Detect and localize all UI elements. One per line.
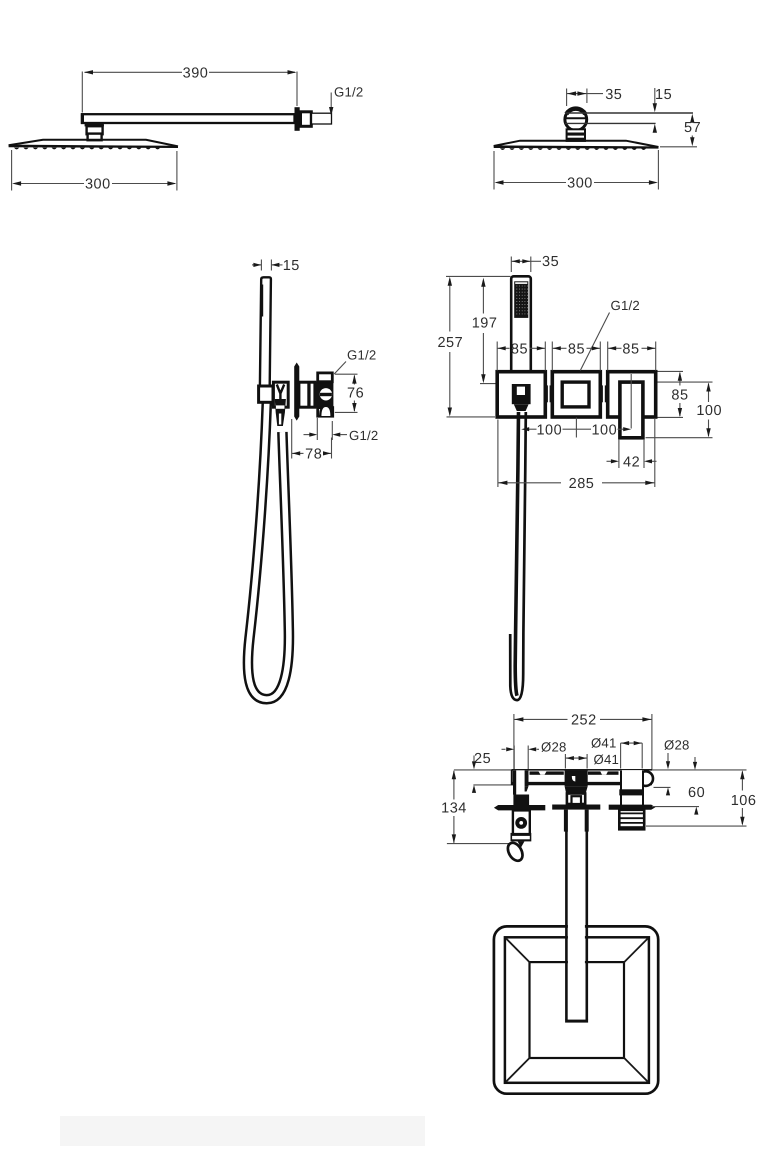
svg-text:42: 42 xyxy=(623,455,640,471)
svg-text:100: 100 xyxy=(591,422,617,438)
svg-text:15: 15 xyxy=(283,258,300,274)
svg-text:100: 100 xyxy=(536,422,562,438)
svg-text:134: 134 xyxy=(441,801,467,817)
svg-text:Ø28: Ø28 xyxy=(664,738,690,753)
svg-text:57: 57 xyxy=(684,120,701,136)
svg-text:35: 35 xyxy=(605,87,622,103)
svg-text:300: 300 xyxy=(85,177,111,193)
svg-text:85: 85 xyxy=(671,387,688,403)
svg-text:85: 85 xyxy=(511,341,528,357)
svg-text:G1/2: G1/2 xyxy=(334,85,363,100)
svg-text:25: 25 xyxy=(474,751,491,767)
svg-text:390: 390 xyxy=(183,65,209,81)
svg-text:Ø41: Ø41 xyxy=(591,736,617,751)
svg-text:100: 100 xyxy=(696,403,722,419)
svg-text:285: 285 xyxy=(569,476,595,492)
svg-text:Ø41: Ø41 xyxy=(594,752,620,767)
svg-text:G1/2: G1/2 xyxy=(349,428,378,443)
svg-text:Ø28: Ø28 xyxy=(541,740,567,755)
svg-text:106: 106 xyxy=(731,793,757,809)
svg-text:300: 300 xyxy=(567,175,593,191)
svg-text:257: 257 xyxy=(437,335,463,351)
svg-text:15: 15 xyxy=(655,87,672,103)
svg-text:85: 85 xyxy=(622,341,639,357)
svg-text:G1/2: G1/2 xyxy=(611,298,640,313)
svg-text:G1/2: G1/2 xyxy=(347,348,376,363)
svg-text:197: 197 xyxy=(472,315,498,331)
svg-text:78: 78 xyxy=(305,447,322,463)
svg-text:35: 35 xyxy=(542,254,559,270)
svg-text:252: 252 xyxy=(571,712,597,728)
svg-text:60: 60 xyxy=(688,785,705,801)
svg-text:76: 76 xyxy=(347,386,364,402)
svg-text:85: 85 xyxy=(568,341,585,357)
